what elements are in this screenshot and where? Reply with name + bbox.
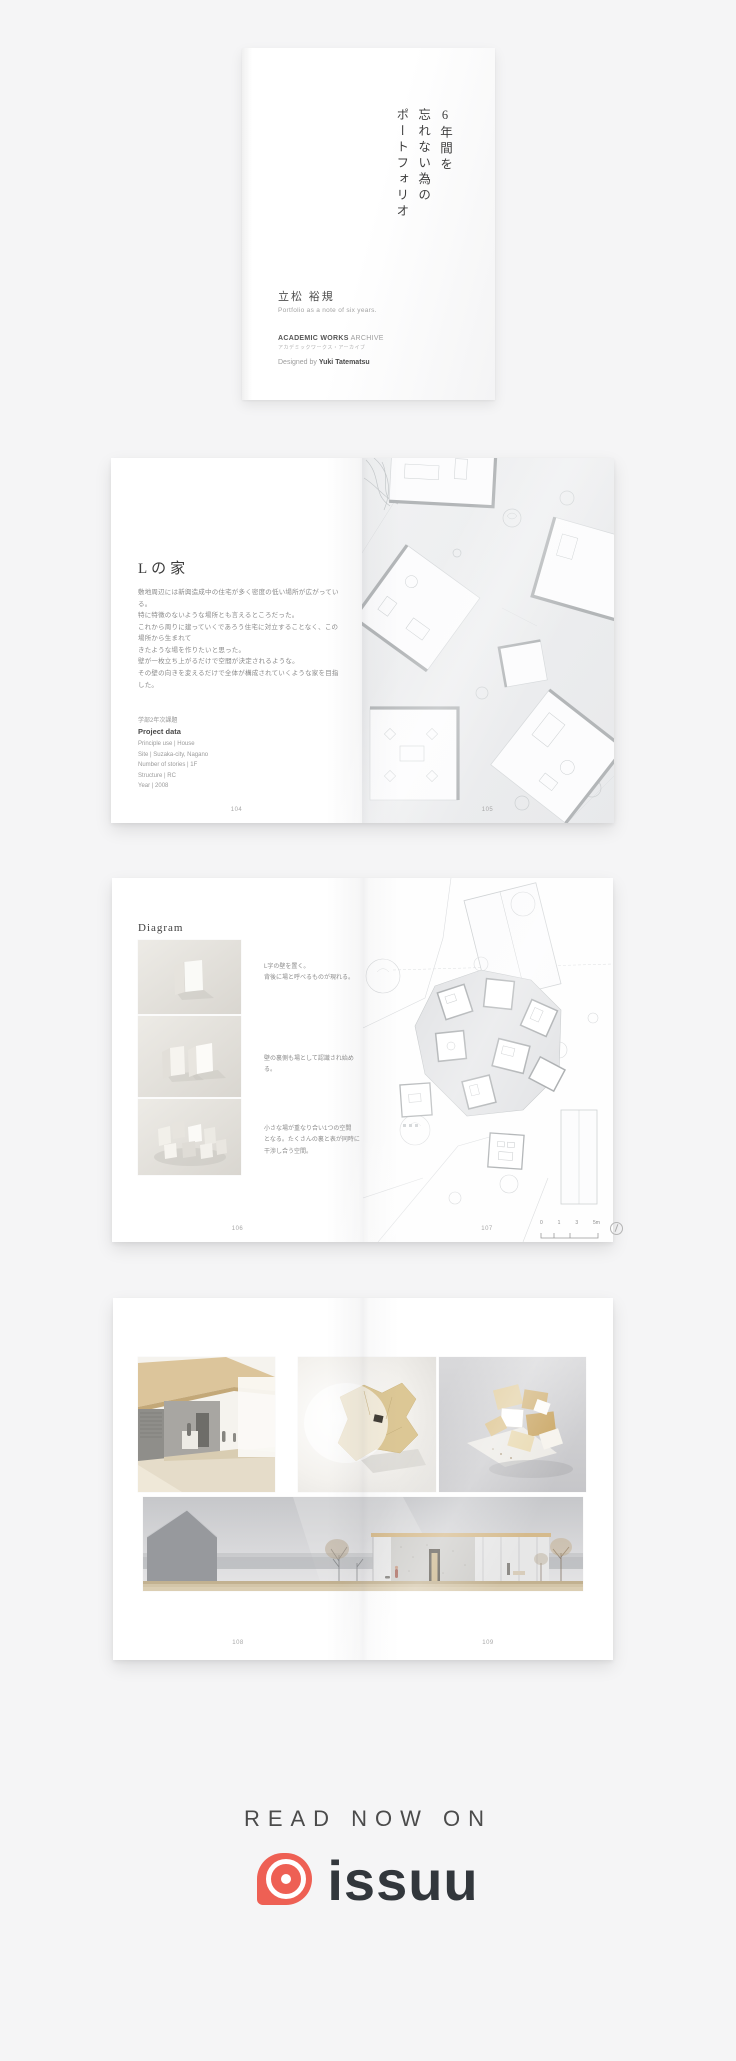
diagram-caption-3: 小さな場が重なり合い1つの空間 となる。たくさんの裏と表が同時に 干渉し合う空間… bbox=[264, 1124, 364, 1158]
model-top-view-photo bbox=[298, 1357, 436, 1492]
caption-line: 壁の裏側も場として認識され始める。 bbox=[264, 1054, 364, 1077]
scale-bar-line bbox=[540, 1232, 600, 1239]
description-line: 壁が一枚立ち上がるだけで空間が決定されるような。 bbox=[138, 656, 344, 668]
cover-spine-fold bbox=[242, 48, 252, 400]
read-now-label: READ NOW ON bbox=[0, 1806, 736, 1832]
caption-line: 干渉し合う空間。 bbox=[264, 1147, 364, 1158]
issuu-icon-ring bbox=[266, 1859, 306, 1899]
issuu-icon-dot bbox=[281, 1874, 291, 1884]
cover-title-line: 6年間を bbox=[433, 108, 455, 220]
designed-by-line: Designed by Yuki Tatematsu bbox=[278, 359, 384, 366]
caption-line: L字の壁を置く。 bbox=[264, 962, 364, 973]
project-data-title: Project data bbox=[138, 727, 181, 736]
scale-bar: 0 1 3 5m bbox=[540, 1220, 600, 1244]
series-title-light: ARCHIVE bbox=[351, 335, 384, 342]
page-number: 106 bbox=[112, 1226, 363, 1232]
cover-author-block: 立松 裕規 Portfolio as a note of six years. … bbox=[278, 288, 384, 366]
series-title-bold: ACADEMIC WORKS bbox=[278, 335, 349, 342]
neighbor-building bbox=[561, 1110, 597, 1204]
description-line: 特に特徴のないような場所とも言えるところだった。 bbox=[138, 610, 344, 622]
description-line: その壁の向きを変えるだけで全体が構成されていくような家を目指した。 bbox=[138, 668, 344, 691]
model-photo-3 bbox=[138, 1099, 241, 1175]
tiny-plan-label-marks bbox=[403, 1124, 418, 1127]
project-data-item: Structure | RC bbox=[138, 771, 208, 782]
diagram-photo-column bbox=[138, 940, 241, 1177]
issuu-drop-icon bbox=[257, 1853, 312, 1905]
page-number: 108 bbox=[113, 1640, 363, 1646]
elevation-render-photo bbox=[143, 1497, 583, 1591]
project-data-item: Site | Suzaka-city, Nagano bbox=[138, 750, 208, 761]
description-line: これから周りに建っていくであろう住宅に対立することなく、この場所から生まれて bbox=[138, 622, 344, 645]
detached-room bbox=[400, 1083, 432, 1117]
caption-line: となる。たくさんの裏と表が同時に bbox=[264, 1135, 364, 1146]
project-title: Lの家 bbox=[138, 557, 189, 578]
site-plan-drawing bbox=[362, 458, 614, 823]
cover-title-line: 忘れない為の bbox=[411, 108, 433, 220]
cover-vertical-title: 6年間を 忘れない為の ポートフォリオ bbox=[389, 108, 455, 220]
model-photo-2 bbox=[138, 1016, 241, 1097]
project-data-item: Number of stories | 1F bbox=[138, 760, 208, 771]
author-subtitle: Portfolio as a note of six years. bbox=[278, 307, 384, 314]
diagram-caption-2: 壁の裏側も場として認識され始める。 bbox=[264, 1054, 364, 1077]
page-number: 104 bbox=[111, 807, 362, 813]
caption-line: 背後に場と呼べるものが現れる。 bbox=[264, 973, 364, 984]
page-number: 105 bbox=[362, 807, 613, 813]
model-aerial-photo bbox=[439, 1357, 586, 1492]
model-photo-1 bbox=[138, 940, 241, 1014]
issuu-logo[interactable]: issuu bbox=[0, 1847, 736, 1911]
series-title-japanese: アカデミックワークス・アーカイブ bbox=[278, 344, 384, 351]
plan-room bbox=[370, 708, 458, 800]
floor-plan-drawing bbox=[363, 878, 613, 1242]
spread-l-house[interactable]: Lの家 敷地周辺には新興造成中の住宅が多く密度の低い場所が広がっている。 特に特… bbox=[111, 458, 614, 823]
assignment-label: 学部2年次課題 bbox=[138, 715, 177, 724]
cover-title-line: ポートフォリオ bbox=[389, 108, 411, 220]
description-line: きたような場を作りたいと思った。 bbox=[138, 645, 344, 657]
portfolio-cover-page[interactable]: 6年間を 忘れない為の ポートフォリオ 立松 裕規 Portfolio as a… bbox=[242, 48, 495, 400]
project-description: 敷地周辺には新興造成中の住宅が多く密度の低い場所が広がっている。 特に特徴のない… bbox=[138, 587, 344, 691]
diagram-caption-1: L字の壁を置く。 背後に場と呼べるものが現れる。 bbox=[264, 962, 364, 985]
project-data-item: Year | 2008 bbox=[138, 781, 208, 792]
project-data-list: Principle use | House Site | Suzaka-city… bbox=[138, 739, 208, 792]
spread-renders[interactable]: 108 109 bbox=[113, 1298, 613, 1660]
caption-line: 小さな場が重なり合い1つの空間 bbox=[264, 1124, 364, 1135]
interior-render-photo bbox=[138, 1357, 275, 1492]
plan-room bbox=[389, 458, 496, 507]
plan-room bbox=[499, 640, 547, 687]
description-line: 敷地周辺には新興造成中の住宅が多く密度の低い場所が広がっている。 bbox=[138, 587, 344, 610]
project-data-item: Principle use | House bbox=[138, 739, 208, 750]
page-number: 109 bbox=[363, 1640, 613, 1646]
diagram-title: Diagram bbox=[138, 922, 183, 934]
author-name: 立松 裕規 bbox=[278, 288, 384, 304]
designed-by-label: Designed by bbox=[278, 359, 319, 366]
issuu-wordmark: issuu bbox=[327, 1853, 478, 1909]
series-title: ACADEMIC WORKS ARCHIVE bbox=[278, 335, 384, 342]
spread-diagram[interactable]: Diagram bbox=[112, 878, 613, 1242]
designer-name: Yuki Tatematsu bbox=[319, 359, 370, 366]
detached-room bbox=[488, 1133, 524, 1169]
page-number: 107 bbox=[362, 1226, 612, 1232]
